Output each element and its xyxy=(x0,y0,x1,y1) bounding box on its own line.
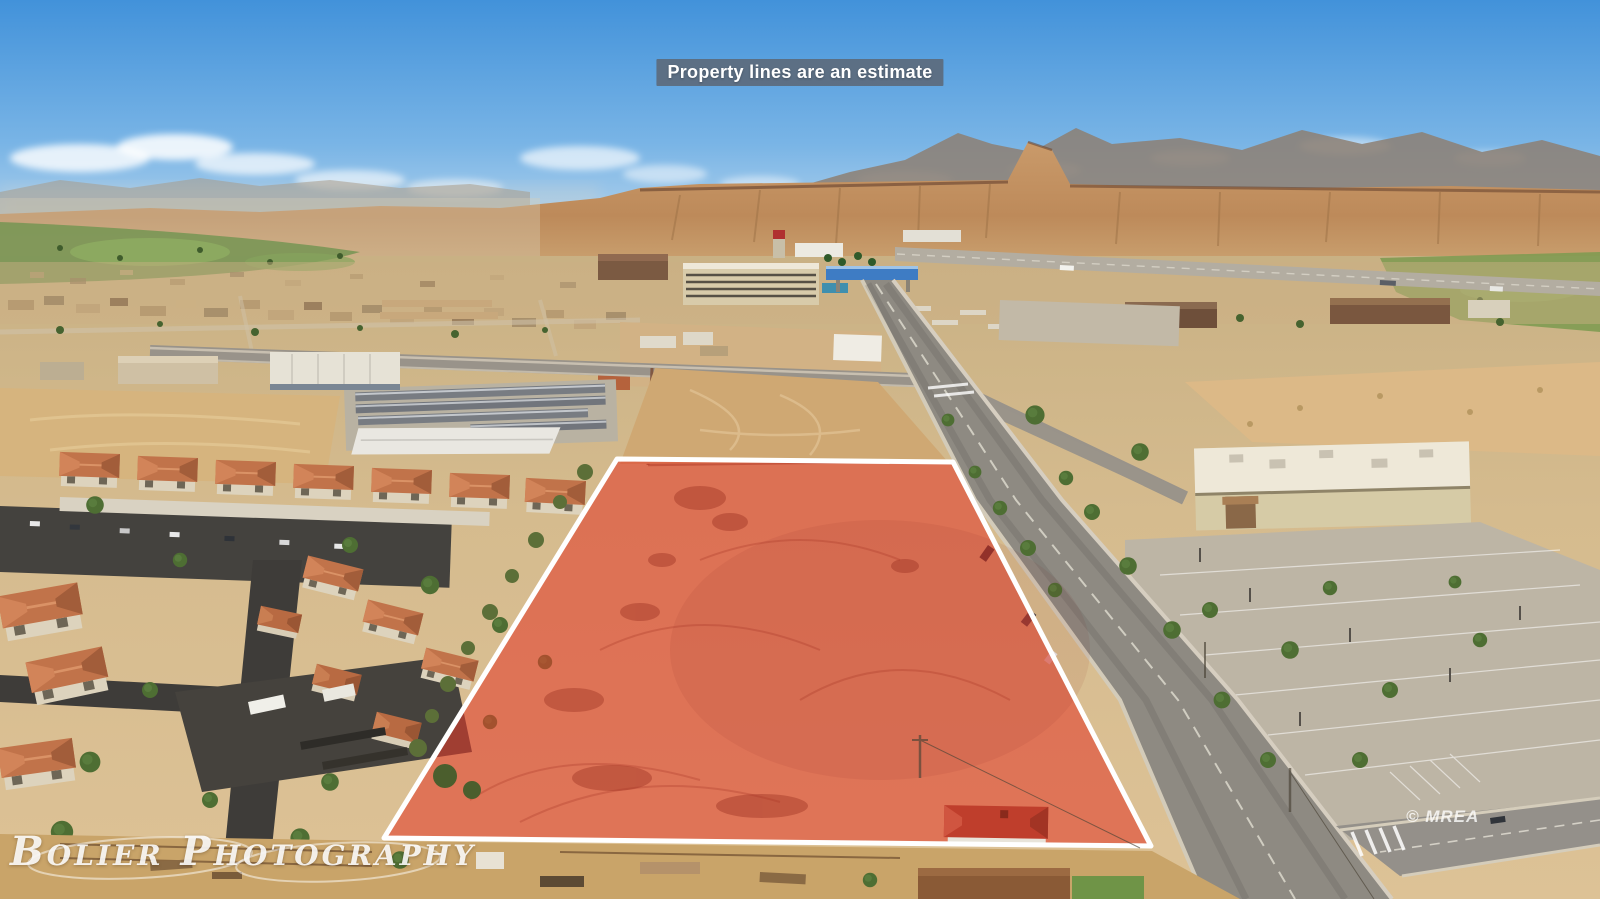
house-on-parcel xyxy=(944,805,1049,847)
copyright-watermark: © MREA xyxy=(1406,805,1479,829)
photographer-watermark: Bolier Photography xyxy=(10,826,470,878)
disclaimer-text: Property lines are an estimate xyxy=(667,62,932,82)
property-lines-disclaimer-banner: Property lines are an estimate xyxy=(656,59,943,86)
copyright-text: © MREA xyxy=(1406,807,1479,826)
photographer-name: Bolier Photography xyxy=(10,828,476,875)
aerial-listing-photo: Property lines are an estimate Bolier Ph… xyxy=(0,0,1600,899)
aerial-scene xyxy=(0,0,1600,899)
